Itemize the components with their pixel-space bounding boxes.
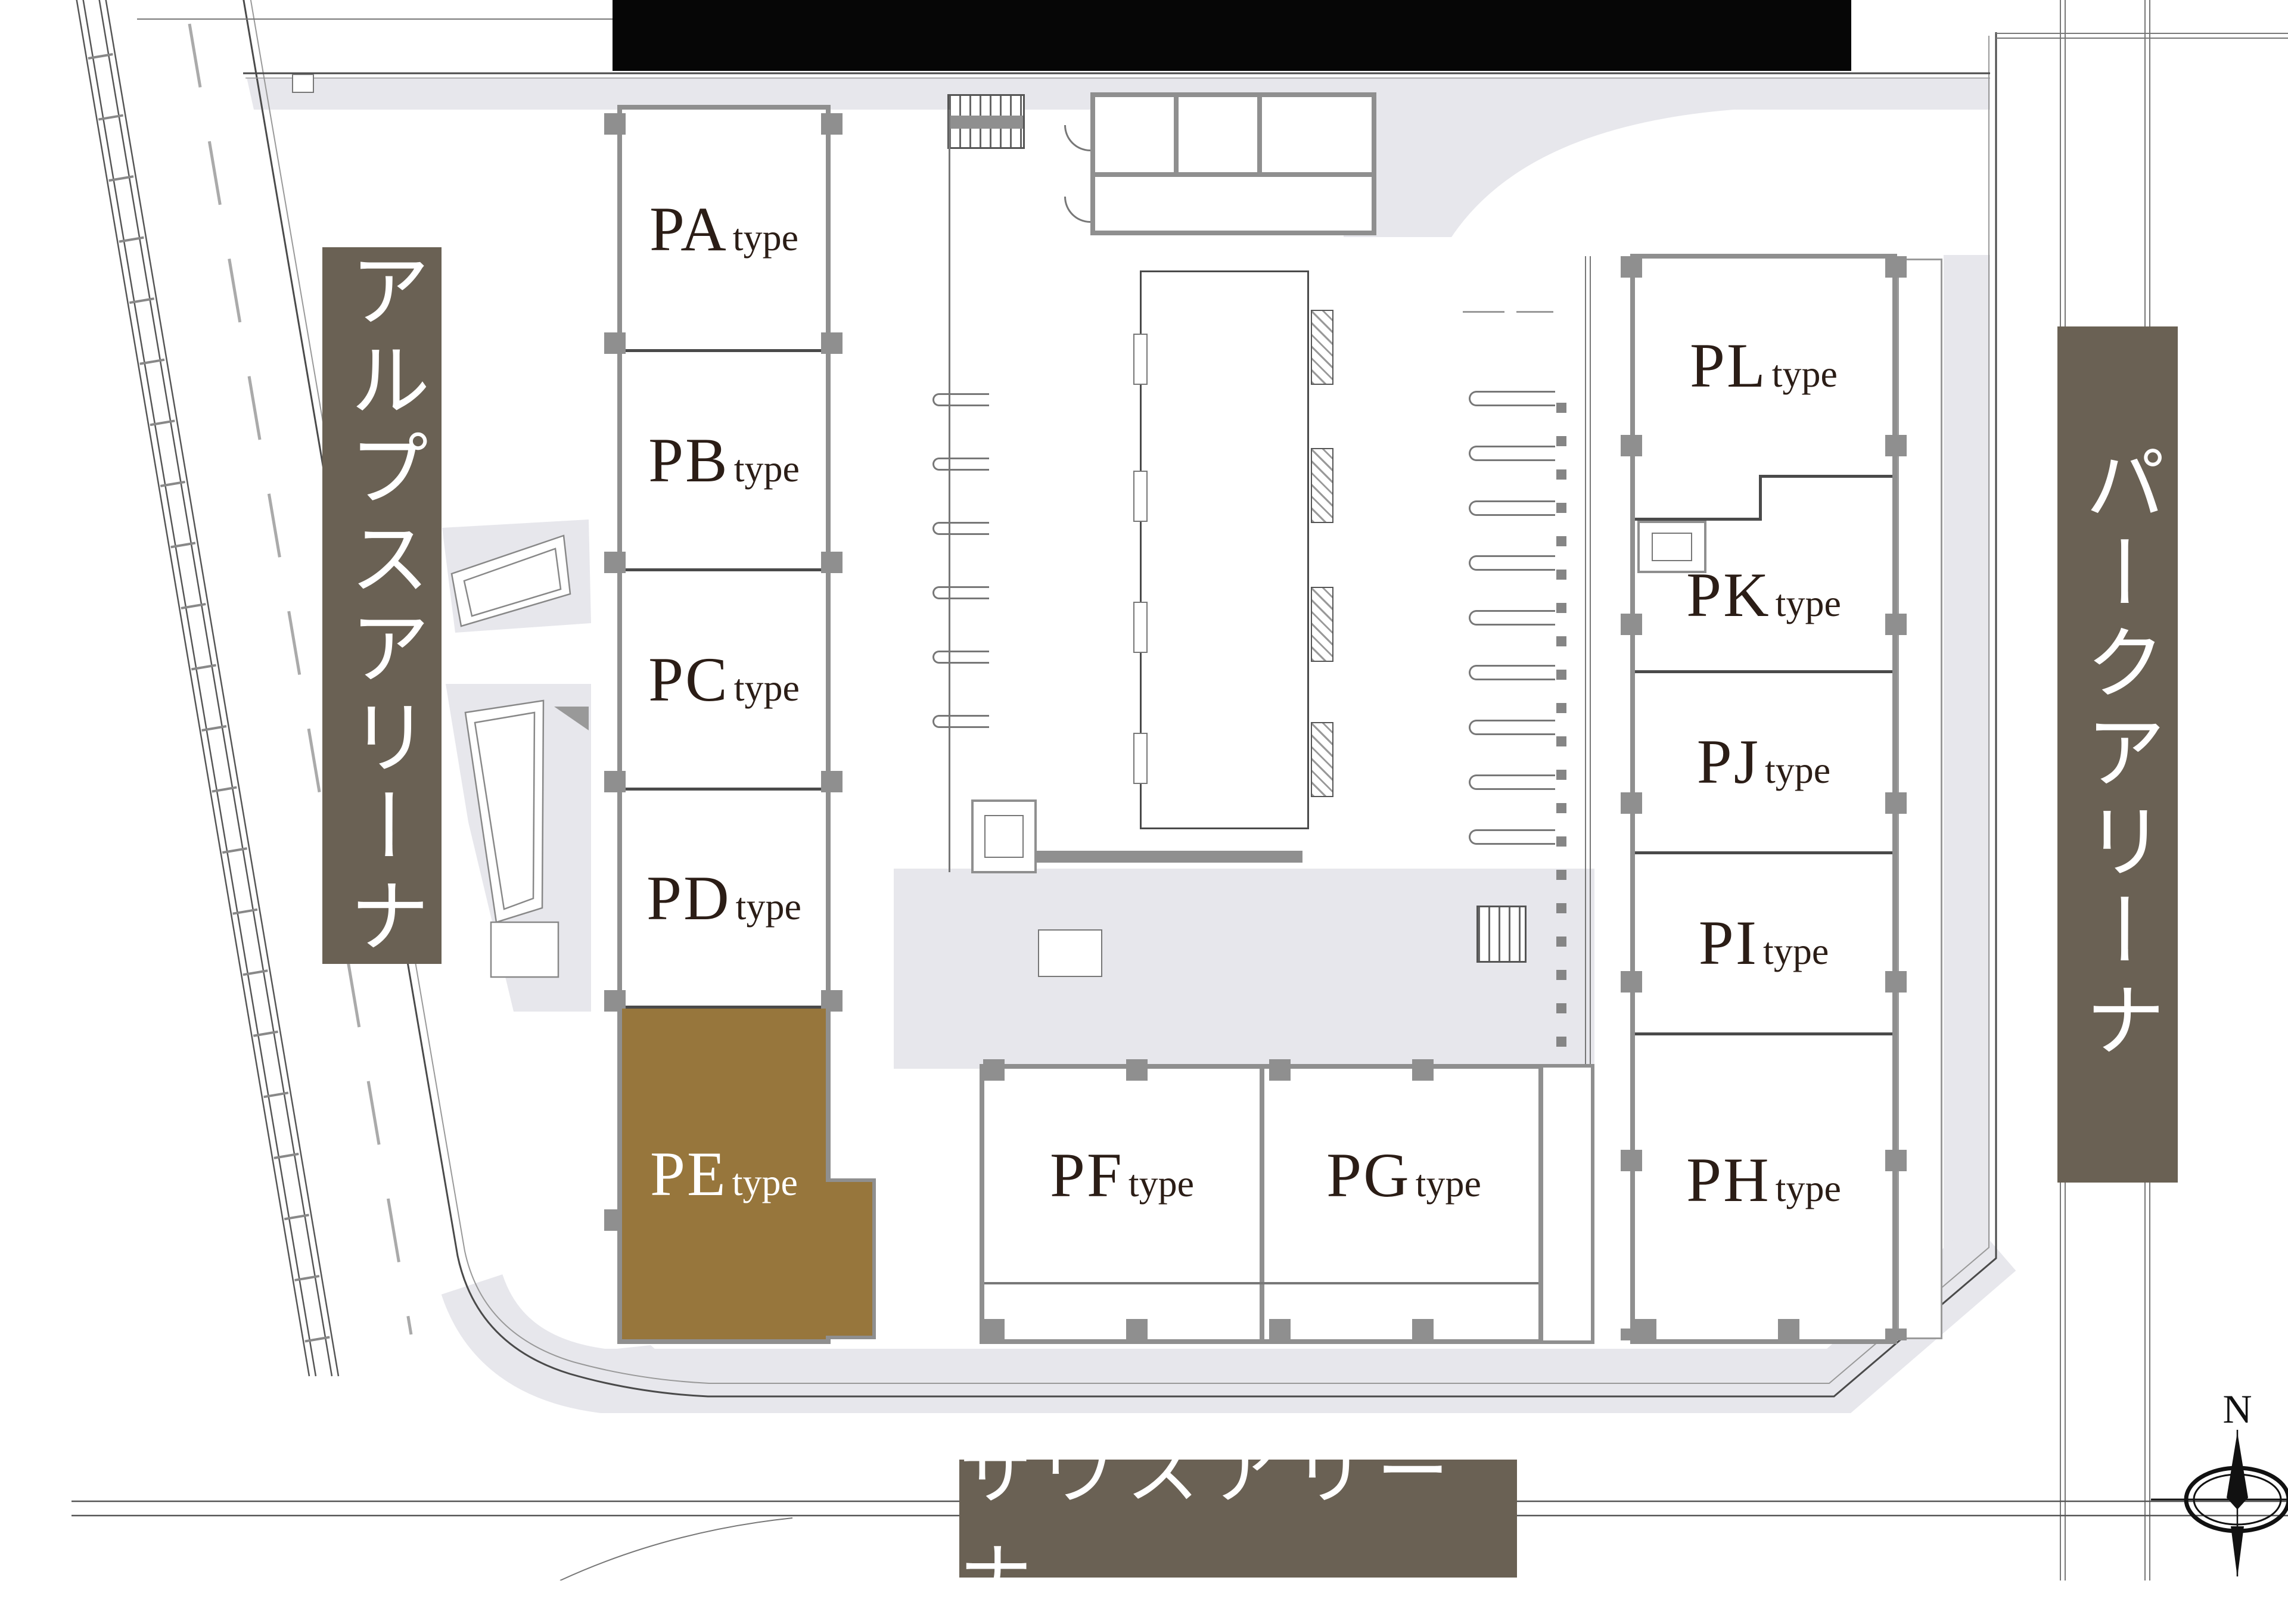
unit-suffix: type xyxy=(1765,748,1830,792)
unit-suffix: type xyxy=(736,885,801,929)
unit-code: PH xyxy=(1686,1144,1771,1217)
bike-rack xyxy=(932,651,989,664)
unit-pi[interactable]: PItype xyxy=(1635,853,1892,1032)
north-stairs-landing xyxy=(949,116,1023,129)
arena-band-south: サウスアリーナ xyxy=(959,1460,1517,1578)
parking-rack xyxy=(1469,774,1555,790)
unit-suffix: type xyxy=(1763,929,1829,973)
compass-label: N xyxy=(2222,1386,2252,1432)
courtyard-window-tick xyxy=(1133,334,1148,385)
south-building-annex xyxy=(1543,1064,1594,1344)
parking-post-row xyxy=(1556,403,1566,1076)
north-room-divider xyxy=(1174,97,1179,172)
unit-code: PC xyxy=(648,643,729,716)
bike-rack xyxy=(932,715,989,728)
entrance-hall xyxy=(1103,889,1259,977)
unit-pl[interactable]: PLtype xyxy=(1635,259,1892,473)
unit-pk[interactable]: PKtype xyxy=(1635,519,1892,670)
corridor-wall xyxy=(949,110,950,872)
unit-suffix: type xyxy=(732,1161,798,1205)
parking-rack xyxy=(1469,665,1555,680)
north-room-block xyxy=(1090,92,1376,235)
unit-code: PD xyxy=(646,862,731,935)
arena-band-east-label: パークアリーナ xyxy=(2059,442,2177,1068)
parking-rack xyxy=(1469,500,1555,516)
unit-suffix: type xyxy=(1776,1166,1841,1211)
courtyard-window-tick xyxy=(1133,602,1148,653)
unit-pe[interactable]: PEtype xyxy=(622,1009,826,1339)
unit-suffix: type xyxy=(734,447,800,491)
parking-rack xyxy=(1469,720,1555,735)
parking-dash xyxy=(1463,311,1504,313)
arena-band-south-label: サウスアリーナ xyxy=(959,1413,1517,1624)
top-black-bar xyxy=(613,0,1851,71)
unit-divider-step xyxy=(1759,475,1762,521)
unit-pf[interactable]: PFtype xyxy=(984,1069,1260,1282)
courtyard-window-louver xyxy=(1311,310,1333,385)
arena-band-east: パークアリーナ xyxy=(2057,326,2178,1183)
courtyard-south-wall xyxy=(1013,851,1302,863)
unit-pa[interactable]: PAtype xyxy=(622,110,826,349)
parking-rack xyxy=(1469,829,1555,845)
unit-suffix: type xyxy=(1416,1162,1481,1206)
unit-divider-step xyxy=(1759,475,1892,478)
north-room-wall xyxy=(1095,172,1372,177)
parking-rack xyxy=(1469,391,1555,406)
parapet-line xyxy=(984,1282,1538,1284)
arena-band-west: アルプスアリーナ xyxy=(322,247,442,964)
unit-code: PL xyxy=(1690,329,1767,402)
unit-ph[interactable]: PHtype xyxy=(1635,1034,1892,1326)
parking-rack xyxy=(1469,555,1555,571)
unit-suffix: type xyxy=(733,216,798,260)
compass-north-needle xyxy=(2227,1432,2248,1510)
entrance-box xyxy=(1442,1013,1543,1066)
unit-pb[interactable]: PBtype xyxy=(622,352,826,568)
bike-rack xyxy=(932,393,989,406)
compass: N xyxy=(2151,1386,2288,1578)
unit-code: PA xyxy=(649,193,728,266)
unit-suffix: type xyxy=(1776,581,1841,626)
unit-pg[interactable]: PGtype xyxy=(1264,1069,1543,1282)
parking-rack xyxy=(1469,610,1555,626)
arena-band-west-label: アルプスアリーナ xyxy=(324,248,441,963)
east-stairs xyxy=(1476,906,1527,963)
north-room-divider xyxy=(1257,97,1262,172)
unit-code: PI xyxy=(1699,907,1758,979)
bike-rack xyxy=(932,586,989,599)
unit-pe-extension[interactable] xyxy=(826,1178,876,1339)
bike-rack xyxy=(932,522,989,535)
railway-track xyxy=(76,0,338,1376)
column-row xyxy=(983,1319,1543,1340)
unit-code: PB xyxy=(648,424,729,497)
courtyard-window-tick xyxy=(1133,471,1148,522)
unit-pj[interactable]: PJtype xyxy=(1635,672,1892,851)
bike-rack xyxy=(932,458,989,471)
unit-code: PK xyxy=(1686,559,1771,631)
parking-dash xyxy=(1516,311,1553,313)
unit-suffix: type xyxy=(734,666,800,710)
unit-suffix: type xyxy=(1129,1162,1194,1206)
unit-pd[interactable]: PDtype xyxy=(622,791,826,1006)
unit-code: PG xyxy=(1326,1139,1411,1212)
courtyard-window-louver xyxy=(1311,587,1333,662)
west-elevator-car xyxy=(984,815,1024,858)
courtyard-window-louver xyxy=(1311,448,1333,523)
entrance-steps xyxy=(1038,929,1102,977)
unit-pc[interactable]: PCtype xyxy=(622,571,826,788)
compass-south-needle xyxy=(2231,1526,2244,1578)
unit-divider xyxy=(1260,1069,1264,1339)
courtyard-window-tick xyxy=(1133,733,1148,784)
unit-code: PE xyxy=(650,1138,728,1211)
unit-code: PF xyxy=(1050,1139,1124,1212)
unit-code: PJ xyxy=(1697,726,1760,798)
parking-rack xyxy=(1469,446,1555,461)
courtyard-window-louver xyxy=(1311,722,1333,797)
unit-suffix: type xyxy=(1772,352,1838,396)
courtyard-building xyxy=(1140,270,1309,829)
